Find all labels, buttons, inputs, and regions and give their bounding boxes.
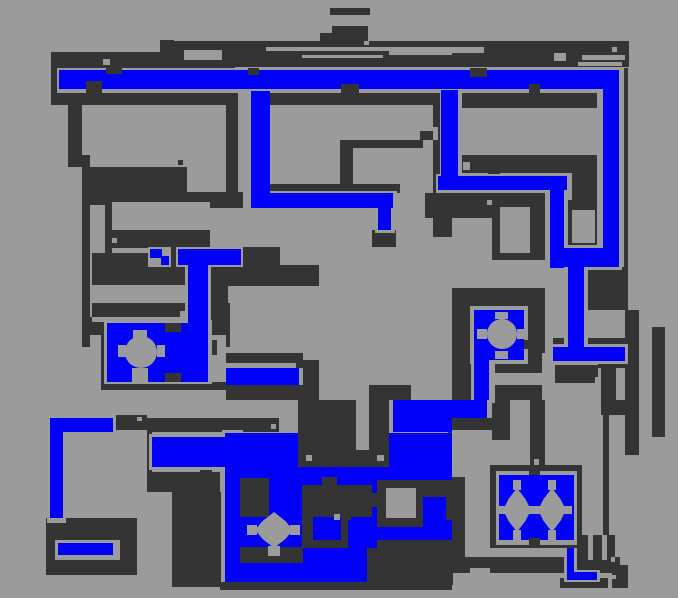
floor-rect [582, 55, 625, 60]
path-rect [251, 193, 393, 208]
floor-rect [452, 47, 484, 53]
floor-rect [588, 535, 593, 560]
path-rect [474, 360, 489, 400]
sprite-body [487, 319, 517, 349]
game-level-map [0, 0, 678, 598]
wall-rect [529, 538, 540, 548]
wall-rect [616, 400, 628, 415]
floor-rect [578, 62, 622, 66]
wall-rect [302, 540, 351, 548]
wall-rect [367, 493, 378, 507]
wall-rect [652, 327, 665, 437]
path-rect [188, 265, 208, 325]
path-rect [438, 176, 567, 190]
floor-rect [489, 373, 542, 385]
floor-rect [463, 162, 470, 170]
floor-rect [377, 455, 384, 461]
wall-rect [178, 160, 183, 165]
floor-rect [554, 53, 566, 61]
wall-rect [106, 68, 122, 74]
wall-rect [492, 400, 510, 440]
floor-rect [92, 285, 185, 303]
wall-rect [92, 303, 185, 317]
sprite-body [125, 336, 157, 368]
wall-rect [322, 477, 337, 486]
floor-rect [184, 50, 222, 60]
floor-rect [433, 127, 438, 140]
wall-rect [452, 418, 495, 430]
wall-rect [341, 84, 359, 95]
floor-rect [612, 47, 617, 52]
wall-rect [160, 40, 174, 53]
floor-rect [602, 535, 607, 560]
wall-rect [330, 8, 370, 15]
wall-rect [367, 540, 453, 585]
path-rect [550, 248, 619, 267]
floor-rect [364, 41, 369, 45]
map-canvas [0, 0, 678, 598]
floor-rect [389, 50, 452, 55]
path-rect [152, 437, 249, 467]
wall-rect [172, 492, 221, 587]
floor-rect [271, 424, 276, 429]
wall-rect [226, 91, 238, 200]
wall-rect [220, 582, 452, 590]
wall-rect [150, 472, 220, 492]
floor-rect [103, 59, 110, 65]
wall-rect [452, 348, 471, 400]
wall-rect [105, 230, 210, 248]
wall-rect [446, 480, 452, 520]
wall-rect [458, 91, 597, 108]
sprite-stem [495, 312, 508, 319]
wall-rect [320, 33, 332, 41]
wall-rect [165, 373, 181, 382]
floor-rect [572, 210, 595, 243]
wall-rect [420, 131, 435, 140]
floor-rect [306, 455, 312, 461]
wall-rect [226, 303, 230, 347]
wall-rect [228, 265, 319, 286]
path-rect [150, 249, 162, 258]
floor-rect [500, 207, 530, 253]
wall-rect [302, 485, 372, 517]
wall-rect [489, 385, 542, 400]
path-rect [226, 368, 299, 385]
wall-rect [470, 68, 487, 77]
floor-rect [487, 200, 492, 205]
path-rect [58, 543, 113, 555]
wall-rect [624, 68, 628, 310]
wall-rect [433, 218, 452, 237]
floor-rect [463, 108, 597, 155]
path-rect [50, 418, 63, 518]
floor-rect [595, 377, 600, 383]
sprite-stem [517, 329, 526, 339]
wall-rect [332, 26, 368, 45]
wall-rect [296, 363, 303, 368]
path-rect [251, 91, 270, 195]
wall-rect [86, 81, 102, 105]
wall-rect [340, 140, 423, 148]
floor-rect [112, 202, 210, 230]
wall-rect [529, 84, 540, 95]
wall-rect [112, 194, 187, 202]
wall-rect [281, 385, 304, 400]
floor-rect [534, 459, 539, 465]
floor-rect [180, 311, 185, 317]
sprite-stem [477, 329, 487, 339]
wall-rect [584, 267, 625, 310]
floor-rect [302, 55, 383, 58]
wall-rect [524, 340, 537, 349]
sprite-stem [118, 345, 126, 357]
floor-rect [619, 68, 624, 252]
path-rect [348, 546, 360, 570]
floor-rect [611, 557, 615, 562]
wall-rect [303, 360, 319, 400]
wall-rect [226, 353, 303, 363]
path-rect [348, 520, 377, 548]
wall-rect [68, 105, 82, 167]
path-rect [452, 400, 487, 418]
wall-rect [241, 247, 280, 267]
floor-rect [356, 400, 369, 450]
floor-rect [137, 417, 142, 421]
wall-rect [555, 365, 598, 383]
wall-rect [248, 68, 259, 75]
floor-rect [112, 238, 117, 243]
wall-rect [147, 418, 279, 432]
wall-rect [462, 155, 572, 173]
sprite-stem [495, 351, 508, 359]
wall-rect [226, 385, 281, 400]
wall-rect [369, 385, 411, 400]
wall-rect [573, 535, 615, 565]
wall-rect [240, 478, 269, 517]
path-rect [441, 90, 458, 190]
floor-rect [612, 575, 616, 579]
floor-rect [597, 87, 603, 252]
floor-rect [470, 568, 490, 598]
floor-rect [386, 488, 416, 518]
sprite-stem [132, 368, 148, 382]
wall-rect [601, 368, 616, 415]
path-rect [178, 249, 241, 265]
path-rect [378, 208, 391, 230]
path-rect [161, 256, 169, 265]
path-rect [567, 572, 597, 580]
wall-rect [452, 477, 465, 567]
path-rect [568, 250, 584, 350]
wall-rect [165, 323, 181, 332]
floor-rect [334, 514, 340, 520]
wall-rect [529, 465, 540, 475]
sprite-stem [157, 345, 165, 357]
wall-rect [340, 148, 353, 187]
path-rect [553, 347, 625, 361]
path-rect [603, 89, 619, 252]
path-rect [393, 400, 452, 432]
